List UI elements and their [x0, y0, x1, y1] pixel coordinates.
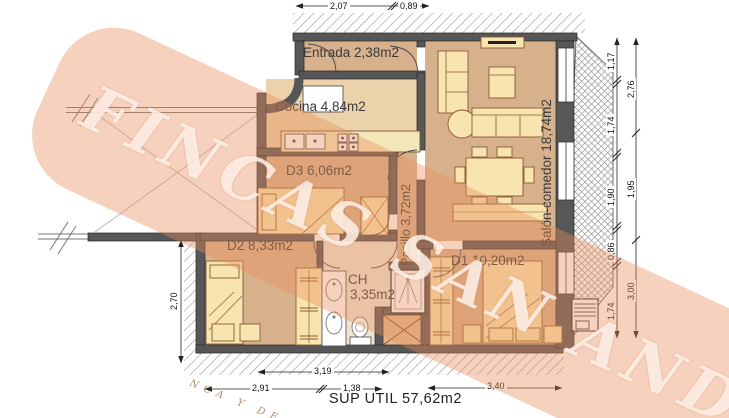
room-label-d2: D2 8,33m2	[227, 238, 293, 253]
stool	[240, 324, 260, 341]
bed-d3	[258, 188, 344, 234]
dim-bottom-3: 1,38	[341, 383, 363, 393]
dim-top-1: 2,07	[328, 1, 350, 11]
room-label-ch-line1: CH	[348, 272, 368, 287]
ac-unit	[572, 299, 598, 331]
dim-right-outer-1: 2,76	[626, 78, 636, 100]
shower	[391, 270, 425, 313]
dim-right-inner-5: 1,74	[606, 300, 616, 322]
floor-plan: Entrada 2,38m2 Cocina 4,84m2 Salón-comed…	[0, 0, 729, 418]
dim-bottom-1: 3,19	[312, 366, 334, 376]
armchair	[489, 67, 515, 98]
d1-furniture	[430, 257, 562, 345]
dim-right-outer-2: 1,95	[626, 178, 636, 200]
room-label-salon: Salón-comedor 18,74m2	[539, 99, 554, 247]
window	[558, 48, 574, 102]
dim-left-1: 2,70	[169, 290, 179, 312]
room-label-cocina: Cocina 4,84m2	[275, 99, 366, 114]
dim-top-2: 0,89	[398, 1, 420, 11]
sofa-horizontal	[472, 108, 543, 137]
dim-bottom-2: 2,91	[250, 383, 272, 393]
room-label-d3: D3 6,06m2	[286, 163, 352, 178]
dim-right-outer-3: 3,00	[626, 280, 636, 302]
floor-plan-drawing	[0, 0, 729, 418]
windows	[558, 48, 574, 294]
wardrobe-d2	[296, 268, 322, 345]
tv-unit	[481, 37, 524, 48]
wardrobe-d1	[430, 257, 453, 345]
dim-bottom-4: 3,40	[485, 381, 507, 391]
wardrobe-d3	[361, 197, 388, 235]
nightstand	[463, 325, 481, 343]
dim-right-inner-2: 1,74	[606, 114, 616, 136]
window	[558, 252, 574, 294]
bedside-rug	[212, 324, 234, 341]
sofa-vertical	[438, 51, 468, 113]
room-label-pasillo: Pasillo 3,72m2	[399, 184, 413, 266]
nightstand	[544, 326, 562, 343]
window	[558, 142, 574, 200]
room-label-ch-line2: 3,35m2	[350, 287, 395, 302]
dim-right-inner-3: 1,90	[606, 186, 616, 208]
dim-right-inner-1: 1,17	[606, 50, 616, 72]
dim-right-inner-4: 0,86	[606, 240, 616, 262]
room-label-d1: D1 10,20m2	[451, 253, 525, 268]
vanity	[322, 271, 346, 346]
patio-lines	[38, 94, 264, 254]
bed-d1	[483, 261, 542, 343]
sideboard	[453, 204, 547, 221]
total-area-label: SUP UTIL 57,62m2	[329, 391, 462, 407]
room-label-entrada: Entrada 2,38m2	[303, 45, 399, 60]
wall-break-mark	[50, 222, 68, 250]
